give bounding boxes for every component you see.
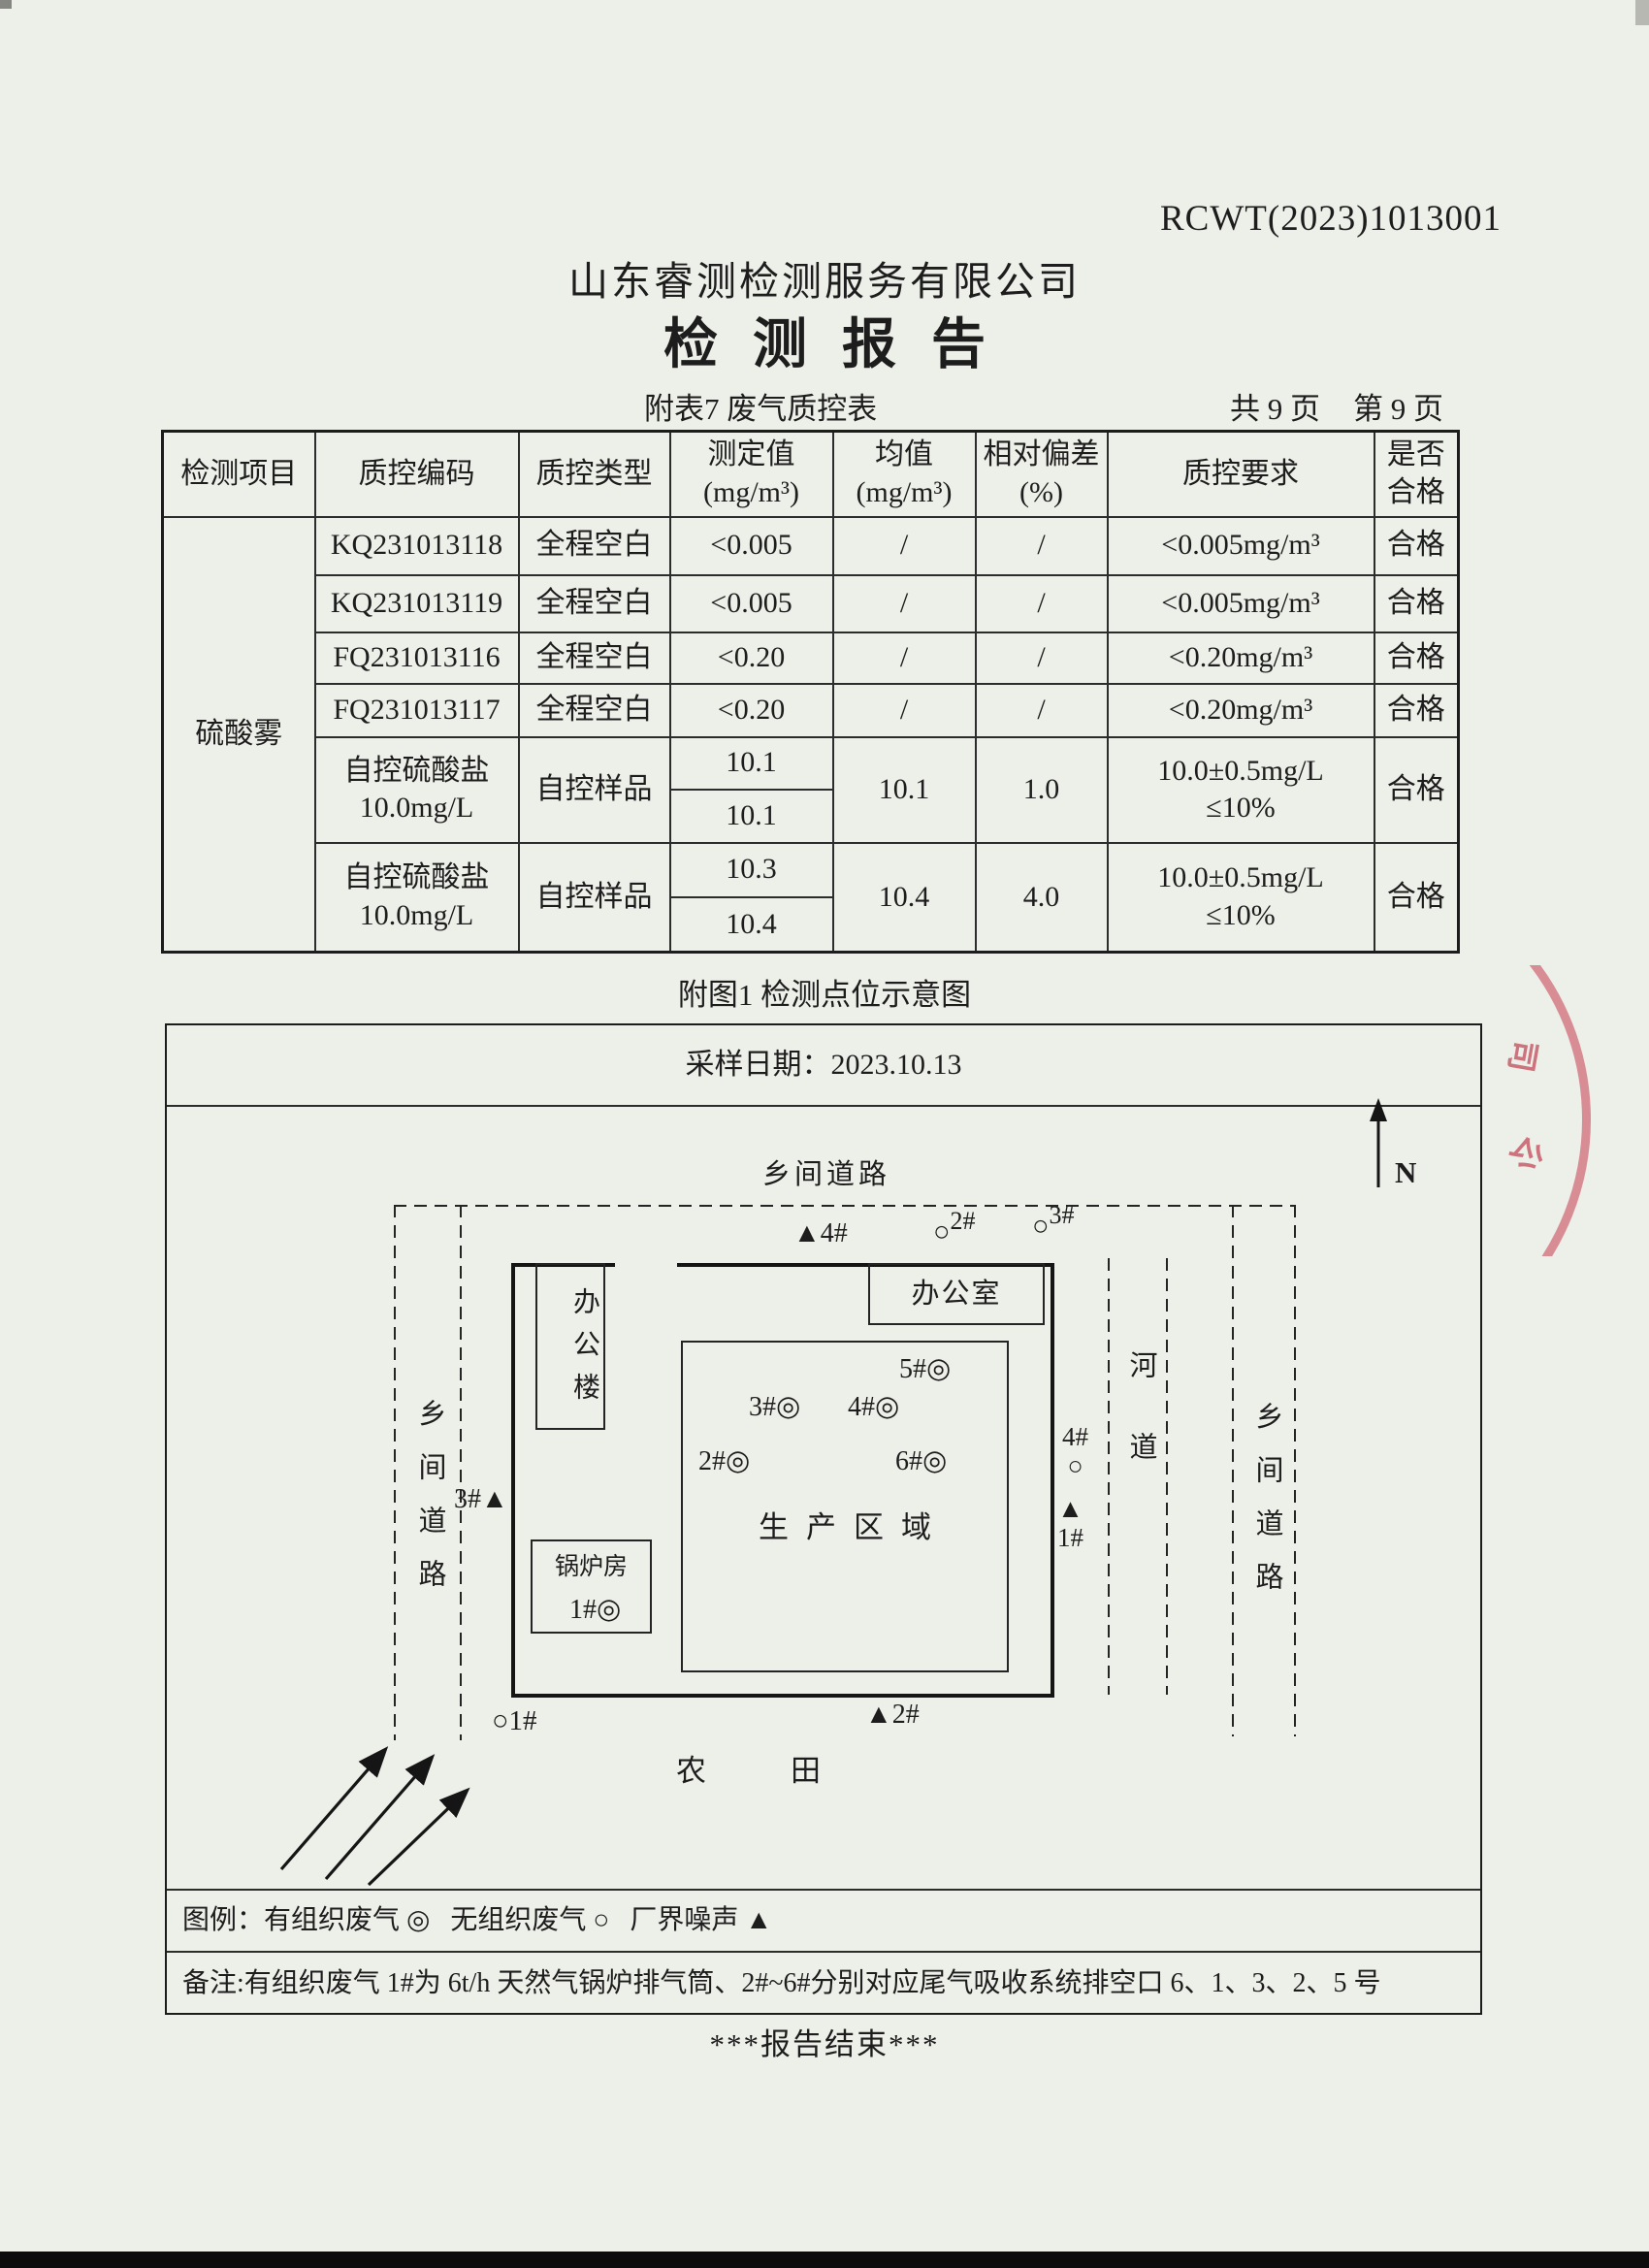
cell-rsd: /: [976, 684, 1108, 737]
cell-measured: 10.1: [670, 737, 833, 790]
cell-requirement: 10.0±0.5mg/L ≤10%: [1108, 737, 1374, 843]
production-area-box: 生产区域 5#◎ 3#◎ 4#◎ 2#◎ 6#◎: [681, 1341, 1009, 1672]
road-left-outer-line: [394, 1205, 396, 1740]
seal-ring: [1502, 965, 1591, 1256]
cell-type: 自控样品: [519, 737, 670, 843]
noise-icon: ▲: [865, 1700, 892, 1730]
cell-measured: <0.005: [670, 575, 833, 632]
table-row: 自控硫酸盐 10.0mg/L 自控样品 10.1 10.1 1.0 10.0±0…: [163, 737, 1459, 790]
road-label-left: 乡间道路: [409, 1399, 450, 1636]
site-diagram: 采样日期：2023.10.13 N 乡间道路 乡间道路 乡间道路 河道 办公楼 …: [165, 1023, 1482, 2015]
cell-type: 全程空白: [519, 632, 670, 684]
table-row: 自控硫酸盐 10.0mg/L 自控样品 10.3 10.4 4.0 10.0±0…: [163, 843, 1459, 897]
cell-sample-name: 自控硫酸盐 10.0mg/L: [315, 737, 519, 843]
factory-gate-gap: [615, 1261, 677, 1270]
fugitive-point-3: ○3#: [1032, 1211, 1075, 1243]
table-row: FQ231013116 全程空白 <0.20 / / <0.20mg/m³ 合格: [163, 632, 1459, 684]
page-number: 第 9 页: [1353, 384, 1443, 428]
farmland-label: 农: [676, 1746, 706, 1790]
cell-rsd: /: [976, 632, 1108, 684]
cell-mean: 10.1: [833, 737, 976, 843]
cell-requirement: 10.0±0.5mg/L ≤10%: [1108, 843, 1374, 953]
noise-point-2: ▲2#: [865, 1700, 920, 1731]
noise-icon: ▲: [793, 1218, 821, 1248]
cell-mean: /: [833, 632, 976, 684]
col-header-rsd: 相对偏差 (%): [976, 432, 1108, 517]
diagram-legend: 图例：有组织废气 ◎ 无组织废气 ○ 厂界噪声 ▲: [167, 1889, 1480, 1949]
road-label-top: 乡间道路: [705, 1151, 948, 1192]
cell-measured: <0.20: [670, 632, 833, 684]
scan-corner-mark: [1635, 0, 1649, 25]
fugitive-point-4: 4# ○: [1062, 1422, 1088, 1480]
cell-requirement: <0.005mg/m³: [1108, 575, 1374, 632]
river-label: 河道: [1120, 1350, 1161, 1564]
cell-pass: 合格: [1374, 684, 1459, 737]
office-box: 办公室: [868, 1263, 1045, 1325]
stack-point-2: 2#◎: [698, 1443, 750, 1477]
noise-point-1: ▲ 1#: [1057, 1494, 1083, 1552]
scan-corner-mark: [0, 0, 12, 9]
unorganized-gas-icon: ○: [1062, 1451, 1088, 1480]
cell-mean: /: [833, 517, 976, 575]
production-area-label: 生产区域: [683, 1503, 1007, 1546]
scan-edge-bar: [0, 2252, 1649, 2268]
organized-gas-icon: ◎: [726, 1445, 750, 1476]
cell-pass: 合格: [1374, 632, 1459, 684]
qc-table-header-row: 检测项目 质控编码 质控类型 测定值 (mg/m³) 均值 (mg/m³) 相对…: [163, 432, 1459, 517]
cell-pass: 合格: [1374, 517, 1459, 575]
cell-measured: <0.20: [670, 684, 833, 737]
unorganized-gas-icon: ○: [933, 1216, 951, 1247]
cell-rsd: /: [976, 517, 1108, 575]
cell-requirement: <0.20mg/m³: [1108, 684, 1374, 737]
river-line-left: [1108, 1258, 1110, 1695]
unorganized-gas-icon: ○: [1032, 1211, 1050, 1242]
road-right-inner-line: [1232, 1205, 1234, 1736]
cell-rsd: 4.0: [976, 843, 1108, 953]
cell-rsd: /: [976, 575, 1108, 632]
col-header-type: 质控类型: [519, 432, 670, 517]
company-seal-stamp: 司 公: [1502, 965, 1649, 1256]
cell-pass: 合格: [1374, 575, 1459, 632]
end-of-report: ***报告结束***: [0, 2020, 1649, 2063]
diagram-note: 备注:有组织废气 1#为 6t/h 天然气锅炉排气筒、2#~6#分别对应尾气吸收…: [167, 1951, 1480, 2013]
road-left-inner-line: [460, 1205, 462, 1740]
noise-icon: ▲: [481, 1484, 508, 1514]
cell-measured: 10.4: [670, 897, 833, 953]
cell-mean: 10.4: [833, 843, 976, 953]
boiler-room-box: 锅炉房 1#◎: [531, 1539, 652, 1634]
cell-measured: <0.005: [670, 517, 833, 575]
organized-gas-icon: ◎: [875, 1391, 899, 1422]
organized-gas-icon: ◎: [922, 1445, 947, 1476]
col-header-requirement: 质控要求: [1108, 432, 1374, 517]
noise-icon: ▲: [1057, 1494, 1083, 1523]
organized-gas-icon: ◎: [776, 1391, 800, 1422]
cell-code: FQ231013116: [315, 632, 519, 684]
boundary-dashed-top: [394, 1205, 1296, 1207]
page-info: 共 9 页 第 9 页: [1230, 384, 1443, 428]
cell-requirement: <0.20mg/m³: [1108, 632, 1374, 684]
cell-requirement: <0.005mg/m³: [1108, 517, 1374, 575]
document-code: RCWT(2023)1013001: [1160, 198, 1502, 240]
road-label-right: 乡间道路: [1246, 1402, 1287, 1639]
stack-point-5: 5#◎: [899, 1351, 951, 1385]
cell-pass: 合格: [1374, 737, 1459, 843]
cell-type: 自控样品: [519, 843, 670, 953]
figure-caption: 附图1 检测点位示意图: [0, 970, 1649, 1014]
cell-item-name: 硫酸雾: [163, 517, 315, 953]
fugitive-point-2: ○2#: [933, 1216, 976, 1248]
wind-direction-arrows-icon: [275, 1724, 518, 1889]
boiler-room-label: 锅炉房: [533, 1547, 650, 1582]
qc-table: 检测项目 质控编码 质控类型 测定值 (mg/m³) 均值 (mg/m³) 相对…: [161, 430, 1460, 954]
cell-mean: /: [833, 575, 976, 632]
cell-type: 全程空白: [519, 517, 670, 575]
cell-type: 全程空白: [519, 684, 670, 737]
table-row: FQ231013117 全程空白 <0.20 / / <0.20mg/m³ 合格: [163, 684, 1459, 737]
cell-sample-name: 自控硫酸盐 10.0mg/L: [315, 843, 519, 953]
report-title: 检测报告: [0, 301, 1649, 379]
stack-point-1: 1#◎: [569, 1592, 621, 1626]
river-line-right: [1166, 1258, 1168, 1695]
cell-measured: 10.3: [670, 843, 833, 897]
col-header-mean: 均值 (mg/m³): [833, 432, 976, 517]
company-name: 山东睿测检测服务有限公司: [0, 248, 1649, 307]
cell-mean: /: [833, 684, 976, 737]
table-row: 硫酸雾 KQ231013118 全程空白 <0.005 / / <0.005mg…: [163, 517, 1459, 575]
cell-pass: 合格: [1374, 843, 1459, 953]
sample-date: 采样日期：2023.10.13: [167, 1025, 1480, 1107]
table-caption: 附表7 废气质控表: [644, 384, 877, 428]
office-building-box: 办公楼: [535, 1263, 605, 1430]
col-header-code: 质控编码: [315, 432, 519, 517]
stack-point-3: 3#◎: [749, 1389, 800, 1423]
table-row: KQ231013119 全程空白 <0.005 / / <0.005mg/m³ …: [163, 575, 1459, 632]
cell-code: FQ231013117: [315, 684, 519, 737]
cell-type: 全程空白: [519, 575, 670, 632]
cell-rsd: 1.0: [976, 737, 1108, 843]
col-header-item: 检测项目: [163, 432, 315, 517]
north-label: N: [1395, 1155, 1416, 1190]
page-count: 共 9 页: [1230, 384, 1320, 428]
organized-gas-icon: ◎: [926, 1353, 951, 1384]
stack-point-4: 4#◎: [848, 1389, 899, 1423]
col-header-pass: 是否 合格: [1374, 432, 1459, 517]
road-right-outer-line: [1294, 1205, 1296, 1736]
stack-point-6: 6#◎: [895, 1443, 947, 1477]
report-page: RCWT(2023)1013001 山东睿测检测服务有限公司 检测报告 附表7 …: [0, 0, 1649, 2268]
noise-point-3: 3#▲: [454, 1484, 508, 1515]
col-header-measured: 测定值 (mg/m³): [670, 432, 833, 517]
cell-code: KQ231013118: [315, 517, 519, 575]
organized-gas-icon: ◎: [597, 1594, 621, 1625]
cell-code: KQ231013119: [315, 575, 519, 632]
cell-measured: 10.1: [670, 790, 833, 843]
noise-point-4: ▲4#: [793, 1218, 848, 1249]
farmland-label: 田: [791, 1746, 821, 1790]
